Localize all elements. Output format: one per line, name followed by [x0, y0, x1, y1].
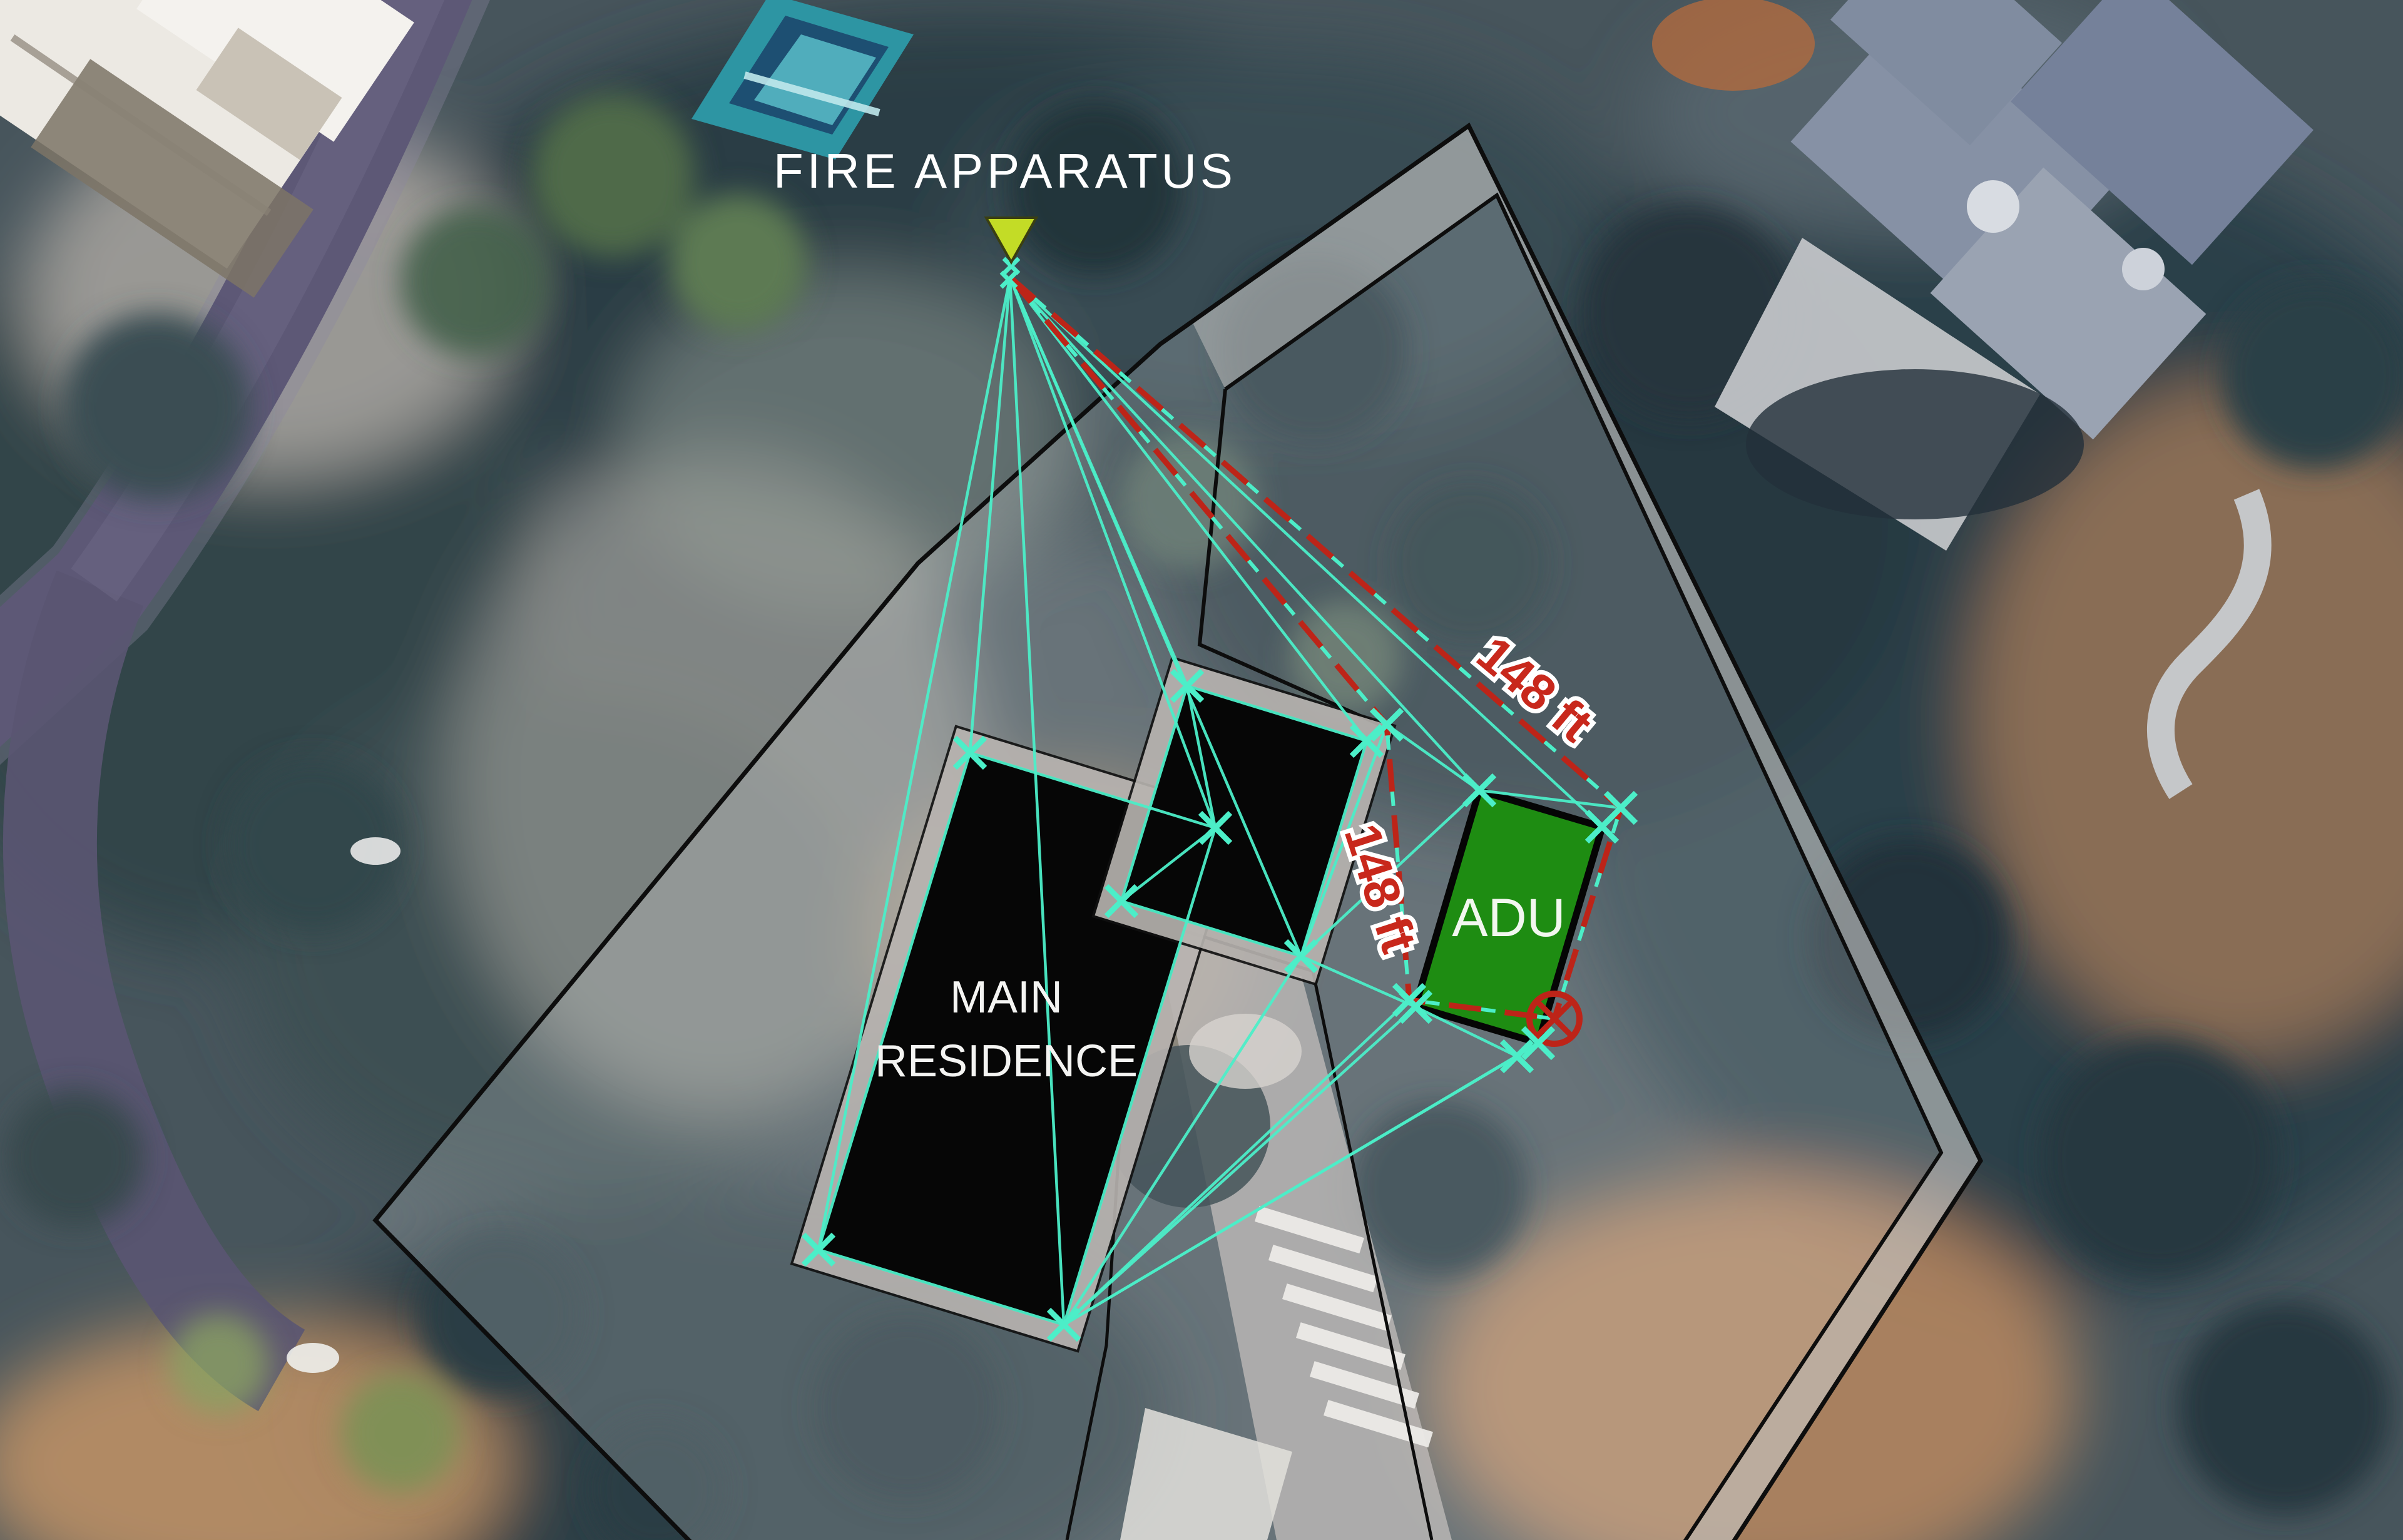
adu-label: ADU	[1452, 888, 1566, 948]
main-residence-label-line2: RESIDENCE	[875, 1036, 1138, 1086]
site-plan-svg: MAIN RESIDENCE ADU FIRE APPARATUS 148 ft…	[0, 0, 2403, 1540]
site-plan-stage: MAIN RESIDENCE ADU FIRE APPARATUS 148 ft…	[0, 0, 2403, 1540]
main-residence-label-line1: MAIN	[950, 972, 1063, 1022]
fire-apparatus-label: FIRE APPARATUS	[773, 143, 1237, 198]
